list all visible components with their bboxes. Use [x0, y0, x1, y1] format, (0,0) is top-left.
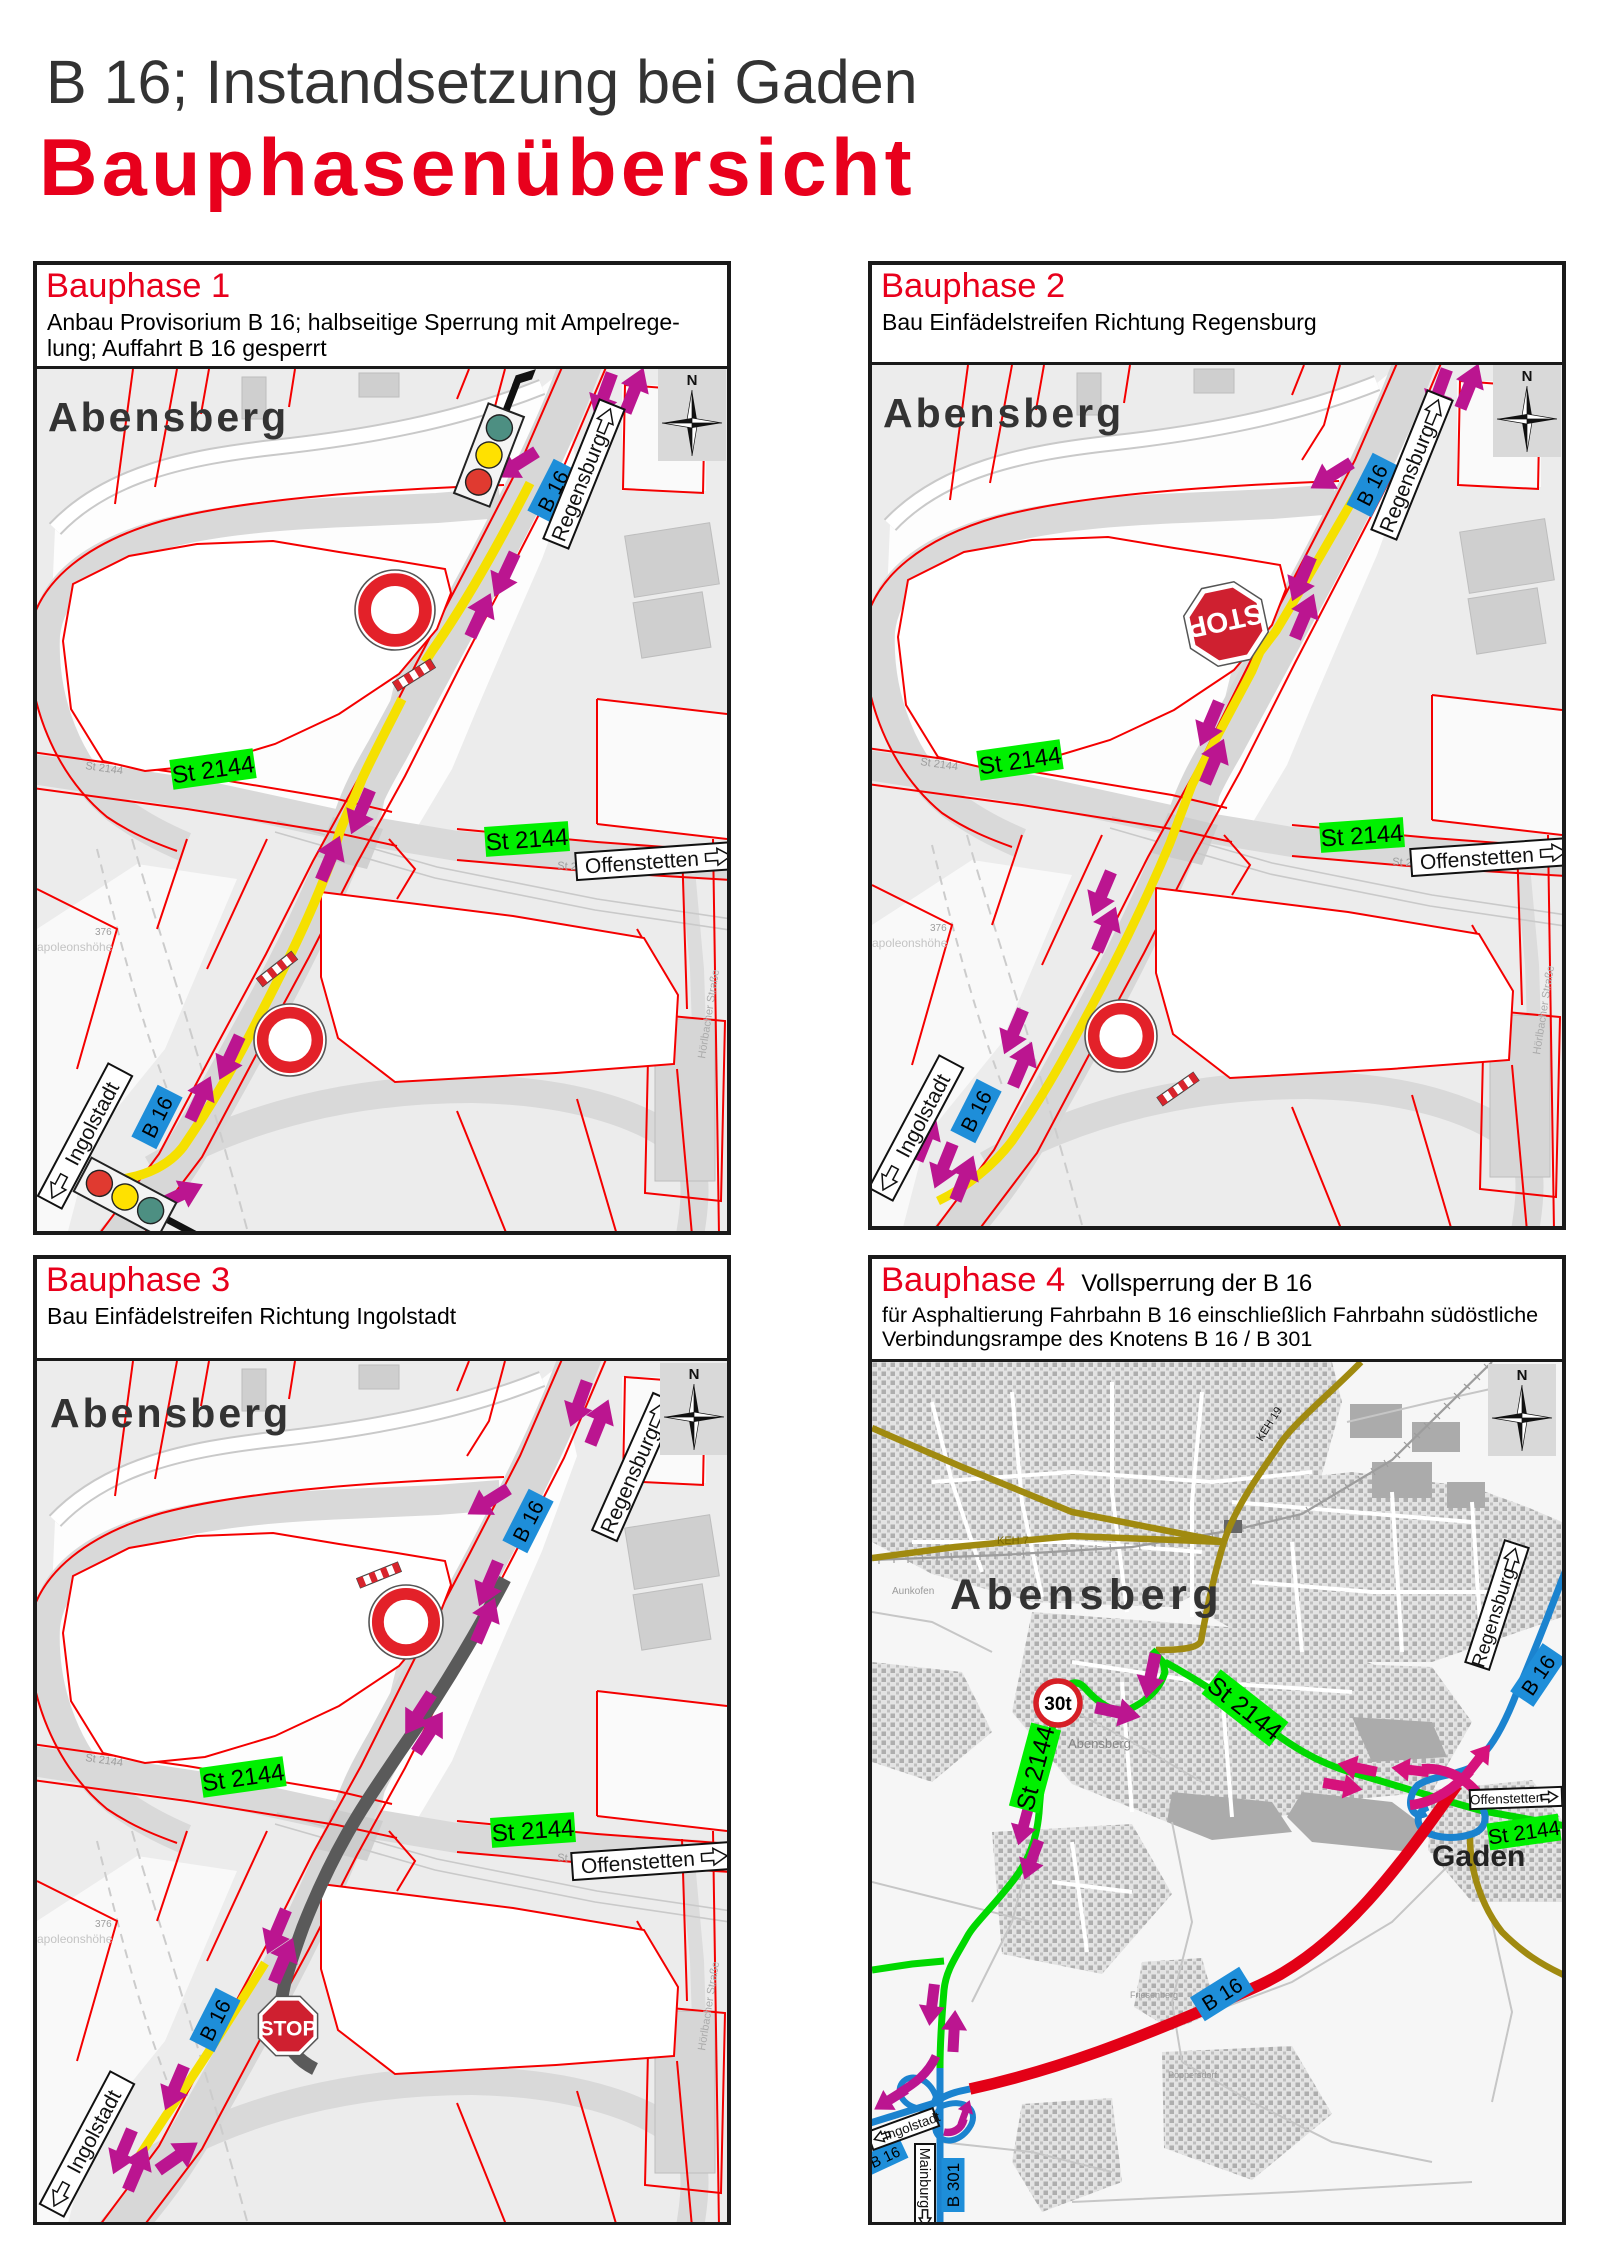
svg-text:N: N — [687, 372, 698, 389]
svg-text:N: N — [689, 1366, 700, 1383]
svg-text:St 2144: St 2144 — [1320, 820, 1404, 853]
svg-text:Gaden: Gaden — [1432, 1840, 1525, 1873]
svg-text:Abensberg: Abensberg — [1068, 1736, 1131, 1751]
svg-text:Offenstetten: Offenstetten — [1470, 1790, 1544, 1808]
svg-text:N: N — [1517, 1367, 1528, 1384]
svg-text:STOP: STOP — [259, 2018, 316, 2041]
svg-text:30t: 30t — [1044, 1694, 1072, 1715]
svg-text:Abensberg: Abensberg — [883, 390, 1124, 436]
svg-text:376: 376 — [95, 927, 112, 938]
svg-text:St 2144: St 2144 — [485, 824, 569, 857]
svg-text:Poppersdorf: Poppersdorf — [1168, 2070, 1218, 2080]
svg-text:Abensberg: Abensberg — [950, 1571, 1224, 1619]
svg-text:N: N — [1522, 368, 1533, 385]
svg-text:KEH 7: KEH 7 — [997, 1535, 1029, 1547]
svg-text:Aunkofen: Aunkofen — [892, 1586, 934, 1597]
svg-text:Friesenberg: Friesenberg — [1130, 1990, 1178, 2000]
svg-text:apoleonshöhe: apoleonshöhe — [37, 940, 113, 954]
svg-text:Abensberg: Abensberg — [48, 394, 289, 440]
svg-text:Abensberg: Abensberg — [50, 1390, 291, 1436]
svg-text:Mainburg: Mainburg — [916, 2148, 932, 2208]
svg-text:St 2144: St 2144 — [491, 1815, 575, 1848]
svg-text:B 301: B 301 — [944, 2163, 963, 2207]
